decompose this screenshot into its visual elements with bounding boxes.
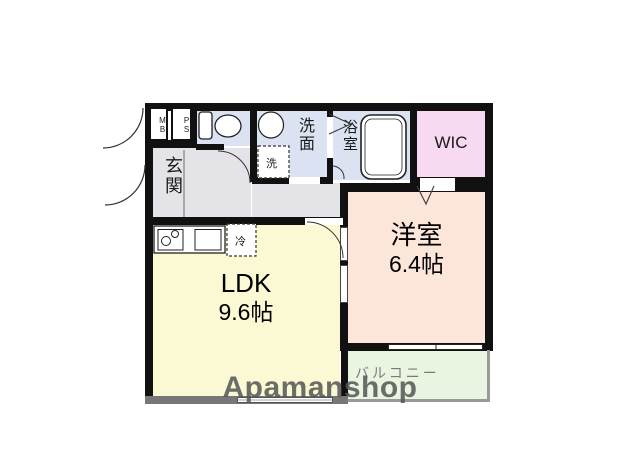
bathroom-corner-arc: [333, 166, 344, 179]
mb-label: MB: [151, 109, 166, 140]
ldk-label-group: LDK 9.6帖: [152, 268, 340, 327]
refrigerator-label: 冷: [235, 233, 246, 249]
floor-plan: MB PS 玄関 洗面 洗 浴室 WIC 冷 LDK 9.6帖 洋室 6.4帖 …: [0, 0, 640, 455]
toilet-door-arc: [218, 151, 250, 183]
western-room-label: 洋室: [390, 220, 442, 251]
toilet-tank-icon: [199, 112, 212, 139]
mb-door-arc: [103, 108, 143, 148]
washbasin-icon: [259, 112, 284, 138]
washroom-label: 洗面: [292, 117, 316, 153]
ldk-label: LDK: [221, 268, 272, 299]
bathroom-label: 浴室: [339, 119, 360, 153]
western-room-label-group: 洋室 6.4帖: [348, 220, 485, 279]
toilet-bowl-icon: [215, 115, 241, 137]
ldk-door-arc: [307, 222, 343, 258]
western-room-size: 6.4帖: [389, 251, 444, 279]
washing-machine-label: 洗: [266, 155, 277, 171]
entrance-door-arc: [105, 165, 145, 205]
watermark: Apamanshop: [222, 371, 417, 405]
ps-label: PS: [175, 109, 190, 140]
bathtub-icon: [361, 115, 406, 179]
kitchen-sink-icon: [195, 230, 221, 251]
entrance-label: 玄関: [160, 156, 186, 196]
wic-folding-door-icon: [417, 186, 434, 204]
wic-label: WIC: [417, 133, 485, 153]
ldk-size: 9.6帖: [219, 299, 274, 327]
